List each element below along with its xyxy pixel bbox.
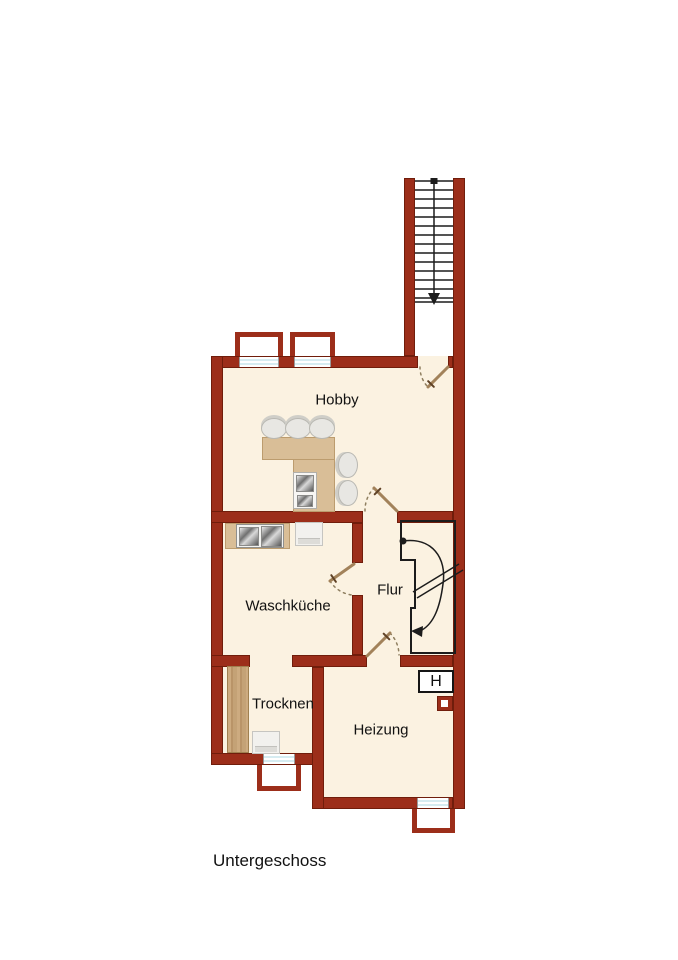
room-label-hobby: Hobby xyxy=(315,392,358,409)
floor-title: Untergeschoss xyxy=(213,851,326,871)
room-label-flur: Flur xyxy=(377,582,403,599)
exterior-stairs-down-arrow-icon xyxy=(428,178,440,305)
room-label-trocknen: Trocknen xyxy=(252,696,314,713)
floor-plan-canvas: H xyxy=(0,0,678,960)
room-label-waschkueche: Waschküche xyxy=(245,598,330,615)
door-waschkueche xyxy=(330,564,354,595)
plan-symbols-layer xyxy=(0,0,678,960)
door-hobby-flur xyxy=(365,488,397,511)
room-label-heizung: Heizung xyxy=(353,722,408,739)
door-heizung xyxy=(367,633,399,656)
door-entry xyxy=(420,367,448,387)
